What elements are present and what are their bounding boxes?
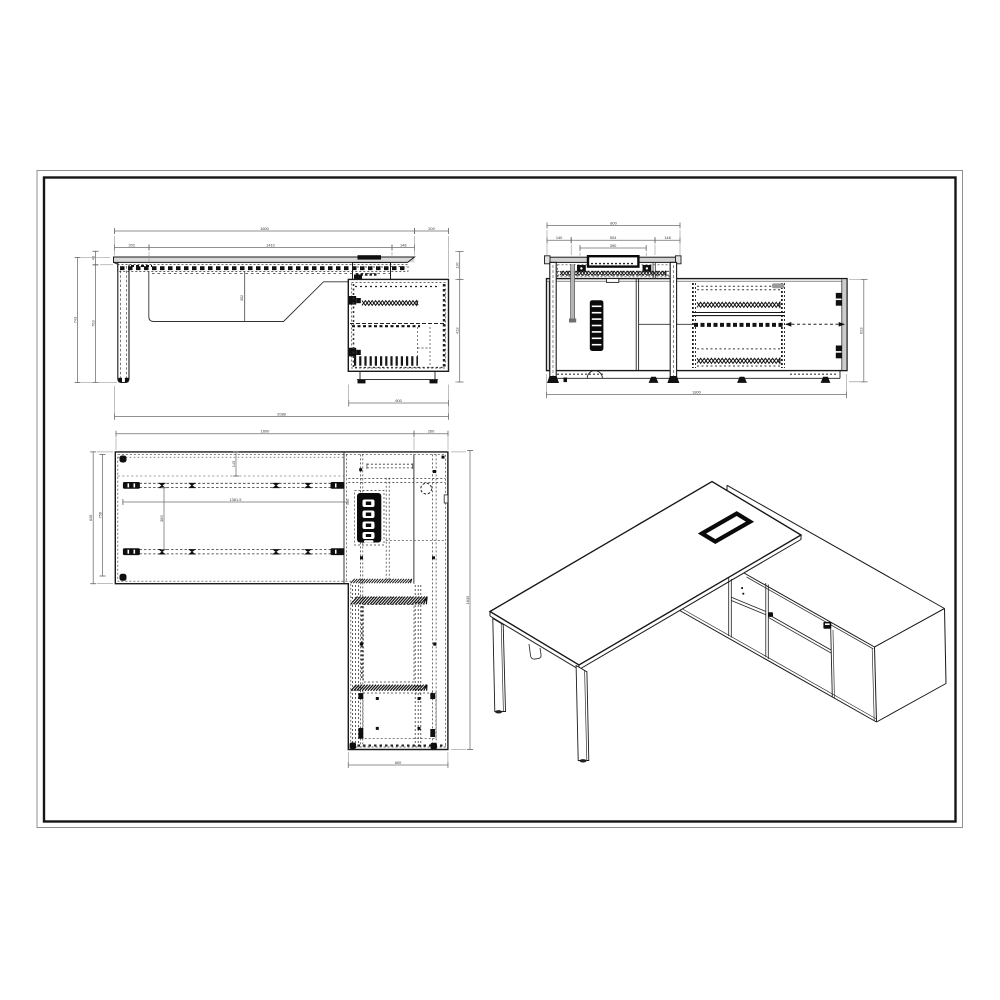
svg-text:600: 600 [395,760,402,765]
svg-text:145: 145 [231,461,236,468]
svg-text:260: 260 [428,429,435,434]
svg-text:202: 202 [129,242,136,247]
svg-text:2088: 2088 [277,411,286,416]
svg-text:623: 623 [859,327,864,334]
svg-text:826: 826 [88,515,93,522]
svg-text:423: 423 [455,327,460,334]
svg-text:1600: 1600 [261,429,270,434]
svg-text:1800: 1800 [692,389,701,394]
svg-text:703: 703 [90,320,95,327]
svg-text:43: 43 [91,256,95,260]
svg-text:390: 390 [610,243,617,248]
svg-text:743: 743 [72,317,77,324]
svg-text:756: 756 [97,512,102,519]
svg-text:148: 148 [400,242,407,247]
svg-text:1410: 1410 [266,242,275,247]
svg-text:1600: 1600 [260,226,269,231]
svg-text:1381.5: 1381.5 [229,497,241,502]
svg-text:600: 600 [395,398,402,403]
svg-text:140: 140 [556,235,563,240]
svg-text:800: 800 [610,220,617,225]
svg-text:1630: 1630 [465,595,470,604]
svg-text:148: 148 [664,235,671,240]
svg-text:504: 504 [610,235,617,240]
svg-text:120: 120 [456,262,460,268]
svg-text:385: 385 [159,515,164,522]
svg-text:200: 200 [428,226,435,231]
svg-text:352: 352 [240,295,244,301]
